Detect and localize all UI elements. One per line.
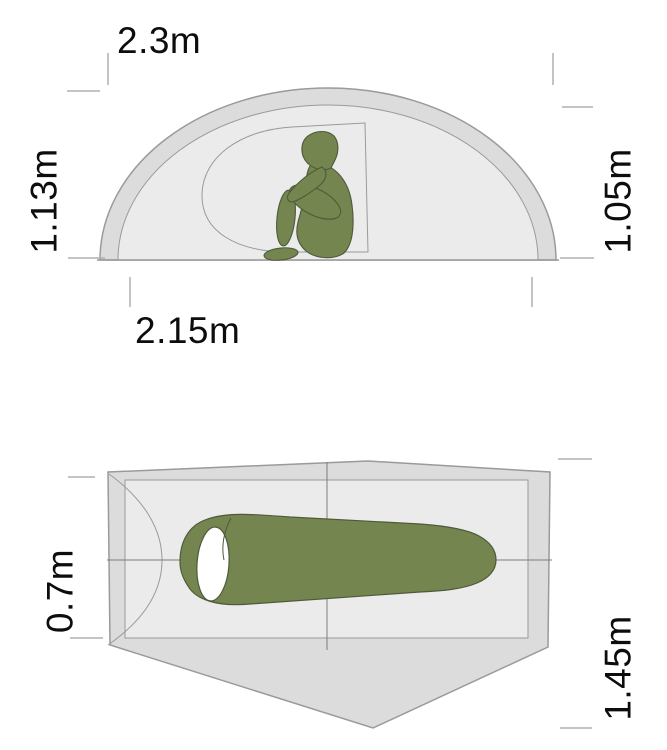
- dimension-label-total-length: 1.45m: [600, 615, 637, 720]
- dimension-label-inner-length: 2.15m: [135, 312, 240, 349]
- dimension-label-left-height: 1.13m: [26, 148, 63, 253]
- side-view: [67, 53, 594, 307]
- tent-dimensions-diagram: 2.3m 1.13m 1.05m 2.15m 0.7m 1.45m: [0, 0, 667, 750]
- top-view: [68, 459, 592, 728]
- dimension-label-inner-width: 0.7m: [42, 549, 79, 633]
- dimension-label-fly-width: 2.3m: [117, 22, 201, 59]
- dimension-label-right-height: 1.05m: [600, 148, 637, 253]
- diagram-drawing: [0, 0, 667, 750]
